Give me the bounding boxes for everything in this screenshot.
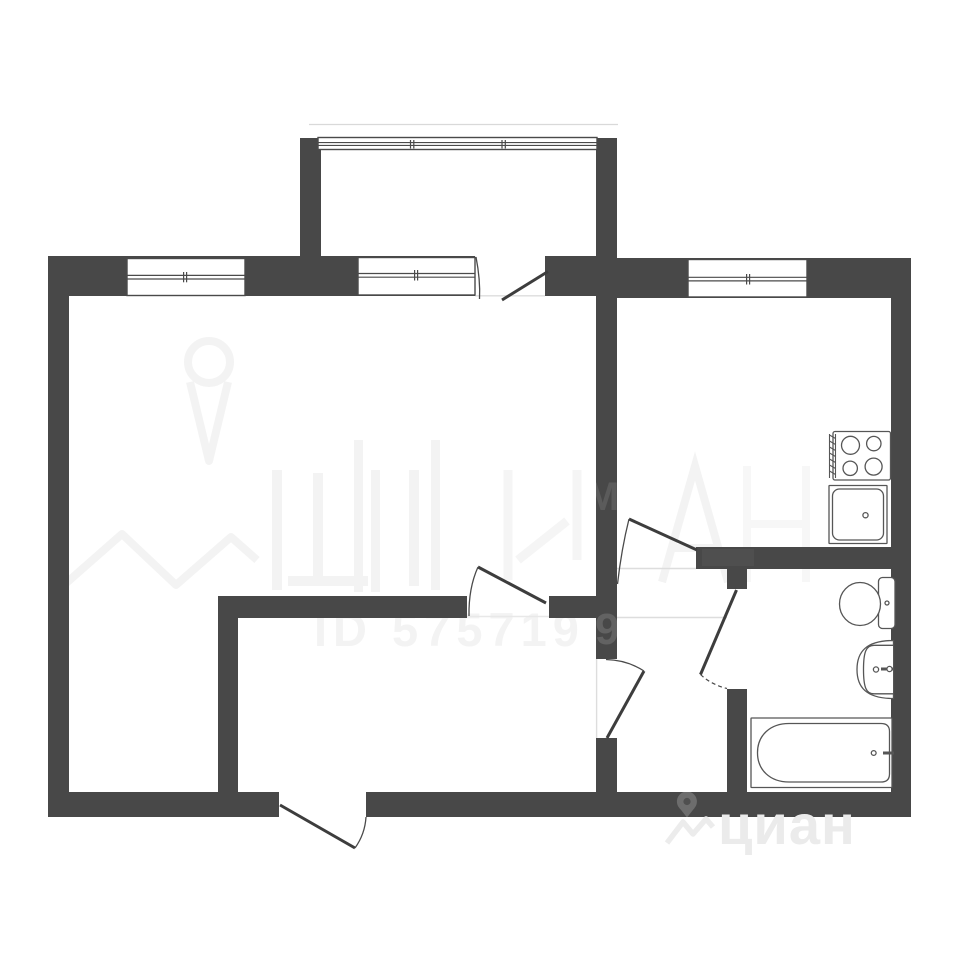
svg-text:циан: циан [718,793,856,856]
svg-text:MM: MM [586,475,653,519]
svg-text:9: 9 [595,605,619,654]
